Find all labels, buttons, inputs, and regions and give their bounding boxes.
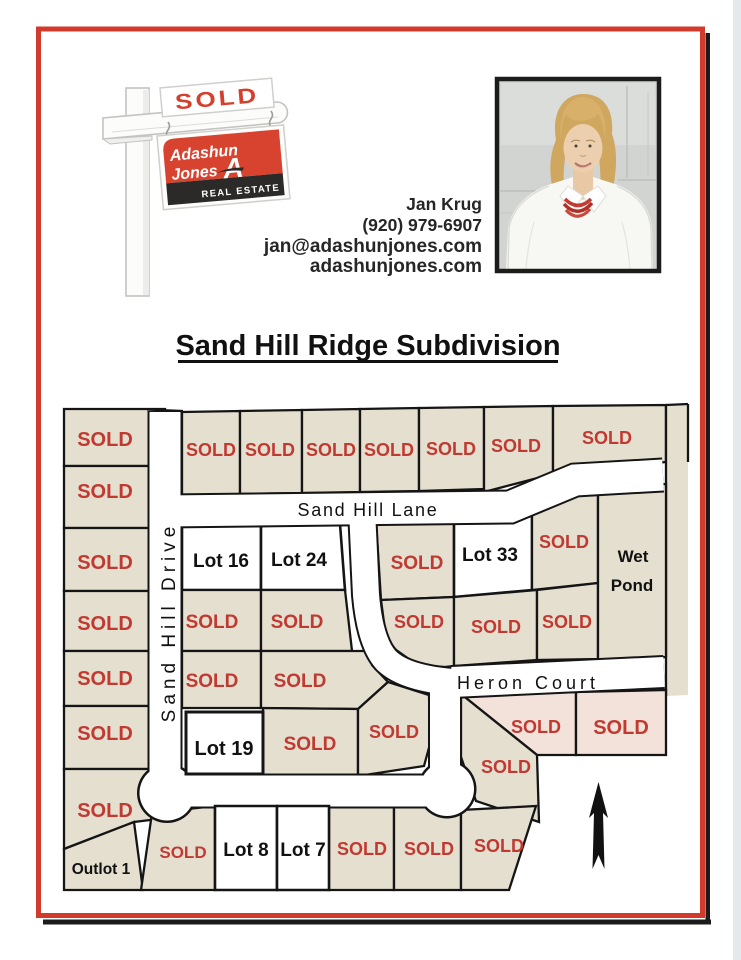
svg-text:SOLD: SOLD [77, 429, 133, 451]
svg-text:Heron Court: Heron Court [457, 673, 599, 693]
svg-text:SOLD: SOLD [186, 671, 239, 692]
svg-text:Sand Hill Lane: Sand Hill Lane [298, 500, 439, 520]
svg-text:SOLD: SOLD [77, 800, 133, 822]
svg-text:SOLD: SOLD [337, 839, 387, 859]
svg-text:SOLD: SOLD [186, 440, 236, 460]
svg-text:SOLD: SOLD [77, 552, 133, 574]
svg-text:SOLD: SOLD [77, 613, 133, 635]
svg-text:SOLD: SOLD [284, 734, 337, 755]
svg-text:SOLD: SOLD [593, 717, 649, 739]
svg-text:SOLD: SOLD [426, 439, 476, 459]
svg-text:Lot 24: Lot 24 [271, 550, 327, 571]
svg-text:SOLD: SOLD [491, 436, 541, 456]
svg-text:Lot 19: Lot 19 [195, 738, 254, 760]
svg-text:SOLD: SOLD [364, 440, 414, 460]
svg-text:SOLD: SOLD [274, 671, 327, 692]
svg-text:SOLD: SOLD [186, 612, 239, 633]
svg-text:(920) 979-6907: (920) 979-6907 [362, 215, 482, 235]
svg-text:SOLD: SOLD [391, 553, 444, 574]
svg-text:SOLD: SOLD [582, 428, 632, 448]
svg-text:Sand Hill Drive: Sand Hill Drive [159, 522, 180, 723]
svg-text:SOLD: SOLD [542, 612, 592, 632]
svg-text:SOLD: SOLD [481, 757, 531, 777]
svg-text:SOLD: SOLD [77, 723, 133, 745]
svg-text:Outlot 1: Outlot 1 [72, 861, 131, 878]
svg-text:SOLD: SOLD [306, 440, 356, 460]
svg-text:jan@adashunjones.com: jan@adashunjones.com [263, 236, 482, 257]
svg-text:SOLD: SOLD [539, 532, 589, 552]
svg-text:Lot 33: Lot 33 [462, 545, 518, 566]
svg-text:SOLD: SOLD [77, 481, 133, 503]
svg-text:Jan Krug: Jan Krug [406, 194, 482, 214]
svg-text:SOLD: SOLD [404, 839, 454, 859]
svg-text:SOLD: SOLD [511, 717, 561, 737]
svg-text:Lot 16: Lot 16 [193, 551, 249, 572]
svg-text:SOLD: SOLD [159, 843, 206, 862]
svg-text:Lot 7: Lot 7 [280, 840, 325, 861]
svg-text:Wet: Wet [618, 547, 649, 566]
svg-text:SOLD: SOLD [369, 722, 419, 742]
svg-text:SOLD: SOLD [474, 836, 524, 856]
svg-text:SOLD: SOLD [394, 612, 444, 632]
svg-text:SOLD: SOLD [77, 668, 133, 690]
svg-text:Pond: Pond [611, 576, 654, 595]
svg-text:Sand Hill Ridge Subdivision: Sand Hill Ridge Subdivision [175, 330, 560, 362]
svg-text:adashunjones.com: adashunjones.com [310, 256, 482, 277]
svg-text:SOLD: SOLD [245, 440, 295, 460]
svg-text:SOLD: SOLD [271, 612, 324, 633]
svg-text:SOLD: SOLD [471, 617, 521, 637]
svg-text:Lot 8: Lot 8 [223, 840, 268, 861]
